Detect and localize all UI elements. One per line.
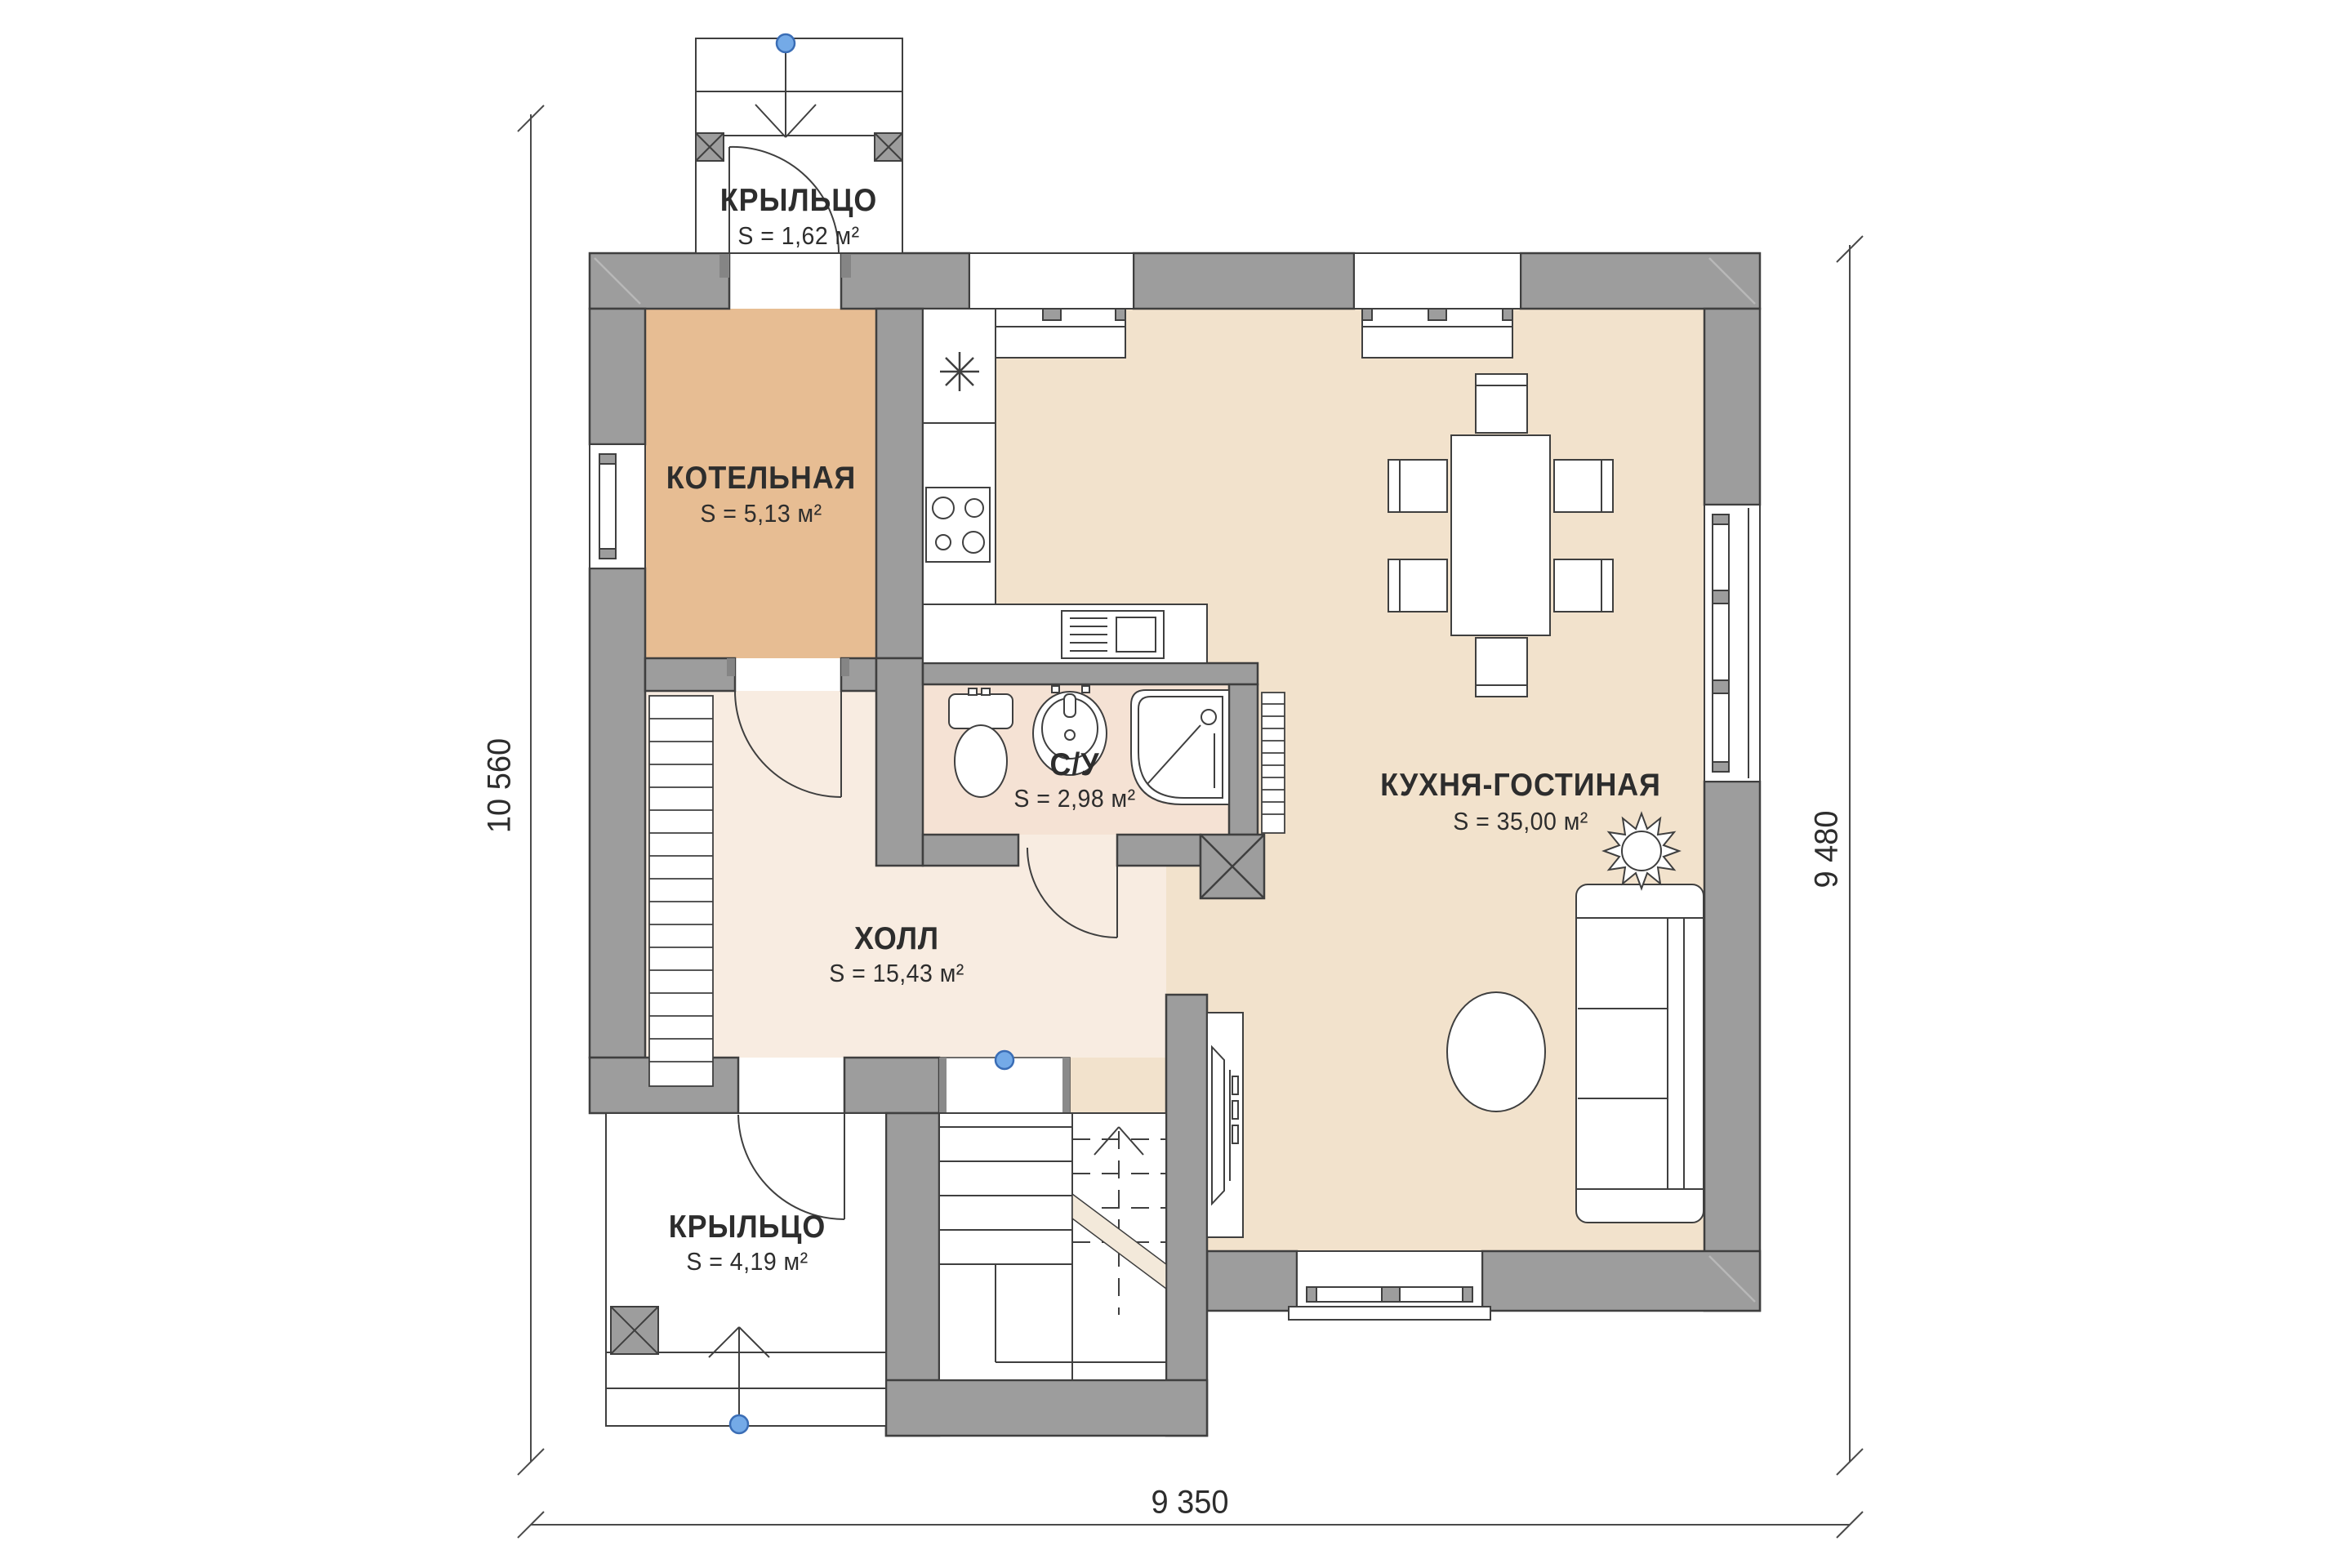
chair-icon <box>1388 559 1447 612</box>
chair-icon <box>1388 460 1447 512</box>
jamb <box>727 658 735 676</box>
wall-tv <box>1166 995 1207 1436</box>
stove-burners-icon <box>926 488 990 562</box>
jamb <box>719 253 729 278</box>
dimension-text-bottom: 9 350 <box>1151 1485 1228 1521</box>
chair-icon <box>1476 374 1527 433</box>
window-opening <box>1354 253 1521 309</box>
wall <box>876 658 923 866</box>
window-mullion <box>1382 1287 1400 1302</box>
room-area-porch-bottom: S = 4,19 м² <box>686 1247 808 1276</box>
chair-icon <box>1476 638 1527 697</box>
kitchen-sink-icon <box>1062 611 1164 658</box>
window-mullion <box>1428 309 1446 320</box>
wall <box>844 1058 939 1113</box>
basin-faucet <box>1064 694 1076 717</box>
window-opening <box>590 444 645 568</box>
room-area-boiler-room: S = 5,13 м² <box>700 499 822 528</box>
wall <box>1229 684 1258 835</box>
window-outer-sill <box>1289 1307 1490 1320</box>
wall <box>923 663 1258 684</box>
entry-point-marker <box>730 1415 748 1433</box>
window-mullion <box>599 454 616 464</box>
window-mullion <box>1116 309 1125 320</box>
wall <box>1134 253 1354 309</box>
wall <box>886 1380 1207 1436</box>
jamb <box>939 1058 947 1113</box>
window-mullion <box>1713 762 1729 772</box>
sofa-icon <box>1576 884 1704 1223</box>
window-mullion <box>1307 1287 1316 1302</box>
wall <box>923 835 1018 866</box>
radiator-body <box>1262 693 1285 833</box>
room-label-bathroom: С/У <box>1050 747 1100 783</box>
entry-point-marker <box>777 34 795 52</box>
room-label-porch-bottom: КРЫЛЬЦО <box>669 1209 826 1245</box>
toilet-bowl <box>955 725 1007 797</box>
room-label-porch-top: КРЫЛЬЦО <box>720 183 877 219</box>
window-mullion <box>1362 309 1372 320</box>
toilet-button <box>969 688 977 695</box>
wall <box>645 658 735 691</box>
window-opening <box>969 253 1134 309</box>
room-label-boiler-room: КОТЕЛЬНАЯ <box>666 461 857 497</box>
toilet-tank <box>949 694 1013 728</box>
room-area-porch-top: S = 1,62 м² <box>737 221 859 251</box>
jamb <box>841 658 849 676</box>
window-mullion <box>1713 680 1729 693</box>
wall <box>876 309 923 658</box>
floor-plan-drawing <box>0 0 2352 1568</box>
window-frame <box>1713 514 1729 772</box>
radiator-icon <box>1262 693 1285 833</box>
wall <box>590 253 729 309</box>
tv-console-icon <box>1207 1013 1243 1237</box>
jamb <box>841 253 851 278</box>
floor-plan-canvas: КРЫЛЬЦО S = 1,62 м² КОТЕЛЬНАЯ S = 5,13 м… <box>0 0 2352 1568</box>
dimension-text-left: 10 560 <box>482 738 519 833</box>
basin-drain <box>1065 730 1075 740</box>
window-mullion <box>1713 590 1729 604</box>
jamb <box>1062 1058 1070 1113</box>
basin-tap <box>1052 686 1059 693</box>
wall <box>590 568 645 1058</box>
room-area-kitchen-living: S = 35,00 м² <box>1453 807 1588 836</box>
sink-basin <box>1116 617 1156 652</box>
tv-shelf <box>1232 1101 1238 1119</box>
wall <box>1704 309 1760 505</box>
room-area-bathroom: S = 2,98 м² <box>1013 784 1135 813</box>
window-mullion <box>1043 309 1061 320</box>
room-area-hall: S = 15,43 м² <box>829 959 964 988</box>
wall <box>1704 782 1760 1311</box>
shelving-body <box>649 696 713 1086</box>
tv-screen <box>1212 1047 1224 1204</box>
structural-column <box>1200 835 1264 898</box>
entry-point-marker <box>996 1051 1013 1069</box>
tv-shelf <box>1232 1125 1238 1143</box>
porch-top-structure <box>696 34 902 253</box>
wall <box>841 253 969 309</box>
room-label-hall: ХОЛЛ <box>854 921 939 957</box>
wall <box>1117 835 1200 866</box>
toilet-icon <box>949 688 1013 797</box>
shower-icon <box>1131 690 1229 804</box>
wall <box>1207 1251 1297 1311</box>
window-right <box>1704 505 1760 782</box>
window-left <box>590 444 645 568</box>
hall-shelving-icon <box>649 696 713 1086</box>
window-mullion <box>1503 309 1512 320</box>
fridge-snowflake-icon <box>940 352 979 391</box>
window-bottom <box>1289 1251 1490 1320</box>
toilet-button <box>982 688 990 695</box>
window-mullion <box>599 549 616 559</box>
chair-icon <box>1554 460 1613 512</box>
dimension-text-right: 9 480 <box>1809 810 1846 888</box>
wall <box>1482 1251 1760 1311</box>
window-mullion <box>1463 1287 1472 1302</box>
chair-icon <box>1554 559 1613 612</box>
wall <box>1521 253 1760 309</box>
basin-tap <box>1082 686 1089 693</box>
dining-table-icon <box>1451 435 1550 635</box>
window-frame <box>599 454 616 559</box>
wall <box>590 309 645 444</box>
room-label-kitchen-living: КУХНЯ-ГОСТИНАЯ <box>1380 768 1661 804</box>
coffee-table-icon <box>1447 992 1545 1111</box>
tv-shelf <box>1232 1076 1238 1094</box>
window-mullion <box>1713 514 1729 524</box>
window-top-2 <box>1354 253 1521 358</box>
